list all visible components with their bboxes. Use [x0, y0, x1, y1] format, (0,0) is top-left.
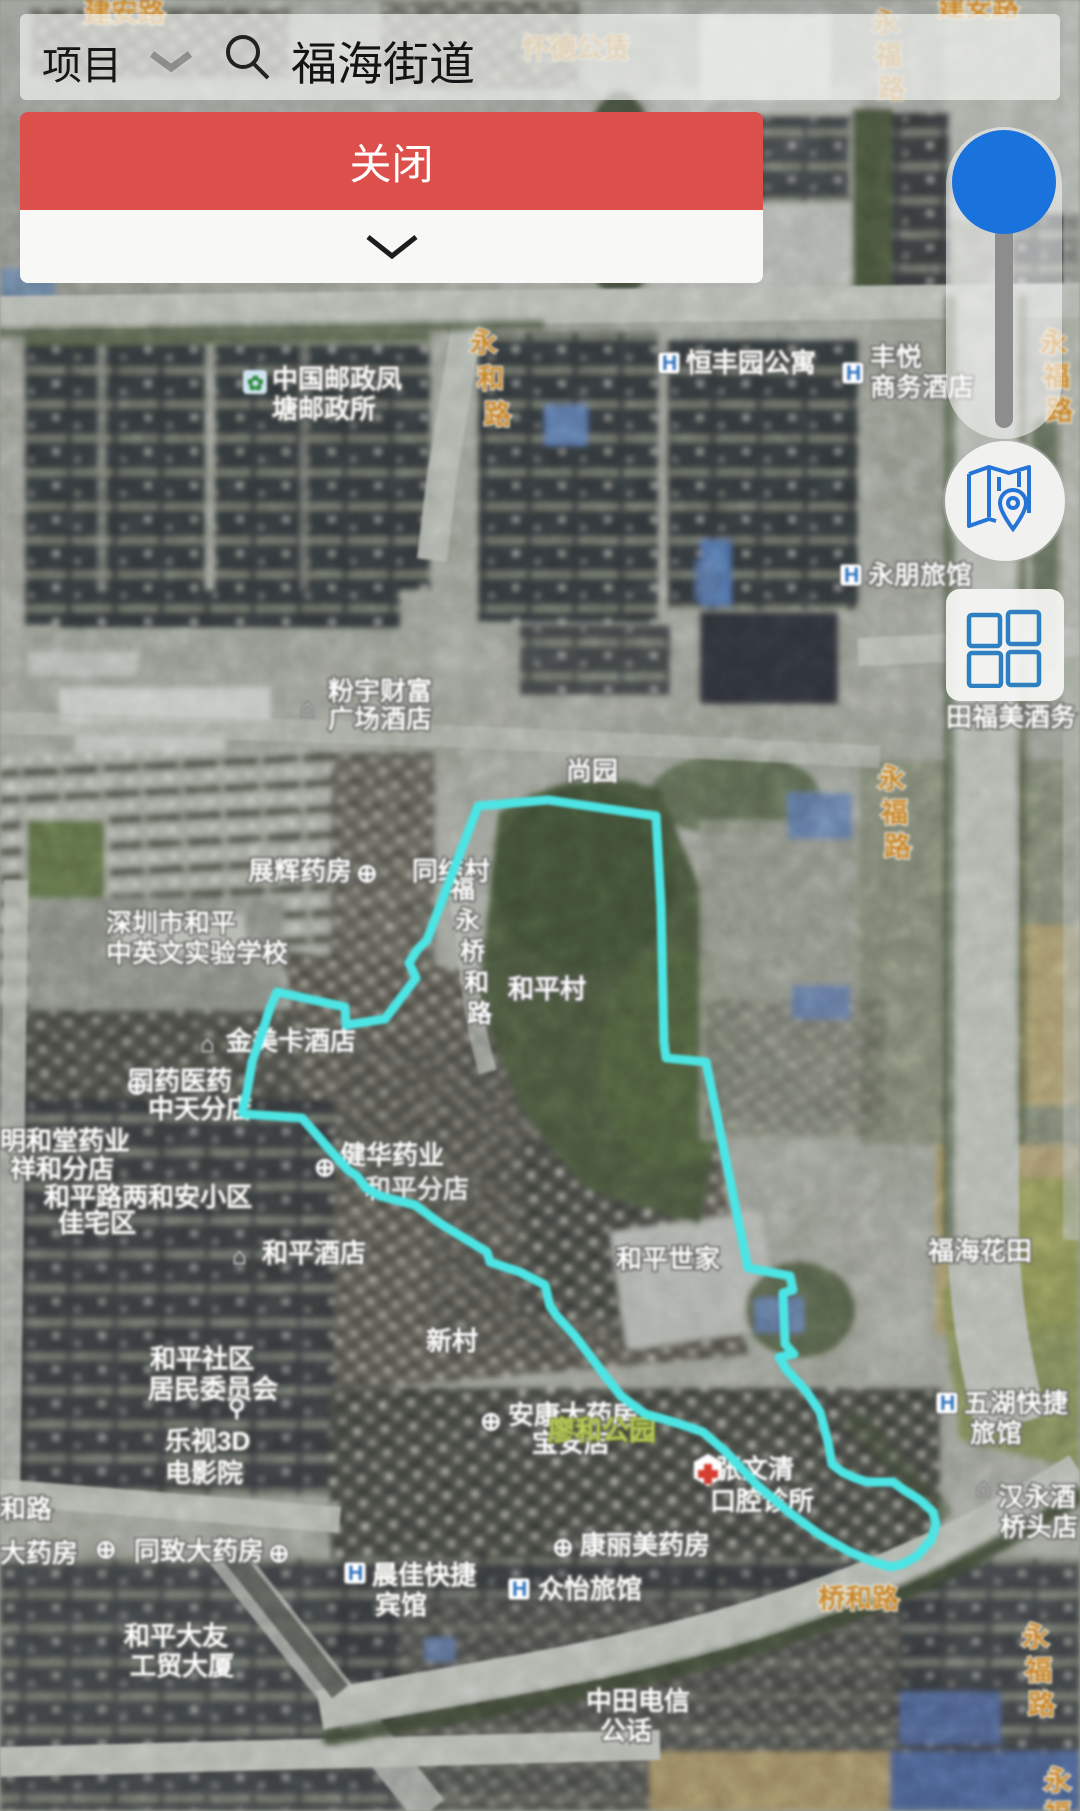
svg-text:新村: 新村: [426, 1326, 478, 1356]
svg-text:✿: ✿: [247, 373, 264, 395]
svg-text:佳宅区: 佳宅区: [58, 1208, 136, 1238]
svg-text:和平社区: 和平社区: [150, 1344, 254, 1374]
svg-text:⊕: ⊕: [356, 858, 378, 888]
svg-text:宾馆: 宾馆: [375, 1590, 427, 1620]
svg-text:中天分店: 中天分店: [148, 1094, 252, 1124]
svg-text:⌂: ⌂: [300, 695, 315, 722]
svg-text:⌂: ⌂: [232, 1243, 247, 1270]
svg-text:⊕: ⊕: [552, 1532, 574, 1562]
svg-text:金美卡酒店: 金美卡酒店: [225, 1026, 356, 1056]
svg-text:塘邮政所: 塘邮政所: [272, 394, 376, 424]
svg-text:汉永酒: 汉永酒: [998, 1482, 1076, 1512]
svg-text:和平村: 和平村: [508, 974, 586, 1004]
svg-text:晨佳快捷: 晨佳快捷: [372, 1560, 476, 1590]
svg-text:⊕: ⊕: [480, 1406, 502, 1436]
svg-text:⚲: ⚲: [228, 1395, 246, 1422]
svg-text:⊕: ⊕: [95, 1534, 117, 1564]
svg-text:和路: 和路: [0, 1494, 53, 1524]
svg-text:广场酒店: 广场酒店: [328, 704, 432, 734]
svg-text:祥和分店: 祥和分店: [10, 1154, 114, 1184]
svg-text:中田电信: 中田电信: [586, 1686, 690, 1716]
svg-text:H: H: [940, 1392, 955, 1415]
svg-text:廖和公园: 廖和公园: [548, 1415, 656, 1446]
svg-text:田福美酒务: 田福美酒务: [946, 702, 1076, 732]
svg-text:乐视3D: 乐视3D: [165, 1426, 250, 1456]
svg-text:大药房: 大药房: [0, 1538, 78, 1568]
svg-text:工贸大厦: 工贸大厦: [130, 1651, 234, 1681]
svg-text:中英文实验学校: 中英文实验学校: [106, 938, 289, 968]
svg-text:丰悦: 丰悦: [870, 342, 922, 372]
svg-text:桥和路: 桥和路: [818, 1583, 900, 1614]
svg-text:和平世家: 和平世家: [616, 1244, 720, 1274]
svg-text:⊕: ⊕: [268, 1538, 290, 1568]
svg-text:H: H: [348, 1562, 363, 1585]
svg-text:⌂: ⌂: [200, 1031, 215, 1058]
svg-text:H: H: [844, 564, 859, 587]
svg-text:五湖快捷: 五湖快捷: [964, 1388, 1068, 1418]
svg-text:康丽美药房: 康丽美药房: [580, 1530, 710, 1560]
svg-text:⌂: ⌂: [976, 1475, 991, 1502]
svg-text:福海花田: 福海花田: [927, 1236, 1032, 1266]
svg-text:和平大友: 和平大友: [124, 1621, 228, 1651]
svg-text:健华药业: 健华药业: [340, 1140, 444, 1170]
svg-text:中国邮政凤: 中国邮政凤: [272, 364, 402, 394]
svg-text:恒丰园公寓: 恒丰园公寓: [686, 348, 816, 378]
svg-text:H: H: [846, 362, 861, 385]
svg-text:H: H: [662, 352, 677, 375]
svg-text:旅馆: 旅馆: [970, 1418, 1022, 1448]
svg-text:粉宇财富: 粉宇财富: [328, 676, 432, 706]
svg-text:永福: 永福: [1043, 1766, 1071, 1811]
svg-text:居民委员会: 居民委员会: [148, 1374, 278, 1404]
svg-text:桥头店: 桥头店: [1000, 1512, 1078, 1542]
svg-text:和平酒店: 和平酒店: [262, 1238, 366, 1268]
svg-text:永朋旅馆: 永朋旅馆: [868, 560, 972, 590]
svg-text:电影院: 电影院: [165, 1458, 243, 1488]
svg-text:众怡旅馆: 众怡旅馆: [538, 1574, 642, 1604]
svg-text:深圳市和平: 深圳市和平: [106, 908, 236, 938]
svg-text:尚园: 尚园: [566, 756, 618, 786]
svg-text:H: H: [512, 1578, 527, 1601]
svg-text:同致大药房: 同致大药房: [134, 1536, 264, 1566]
svg-text:展辉药房: 展辉药房: [248, 856, 352, 886]
svg-text:⊕: ⊕: [126, 1070, 148, 1100]
svg-text:明和堂药业: 明和堂药业: [0, 1126, 130, 1156]
svg-text:公话: 公话: [600, 1716, 652, 1746]
